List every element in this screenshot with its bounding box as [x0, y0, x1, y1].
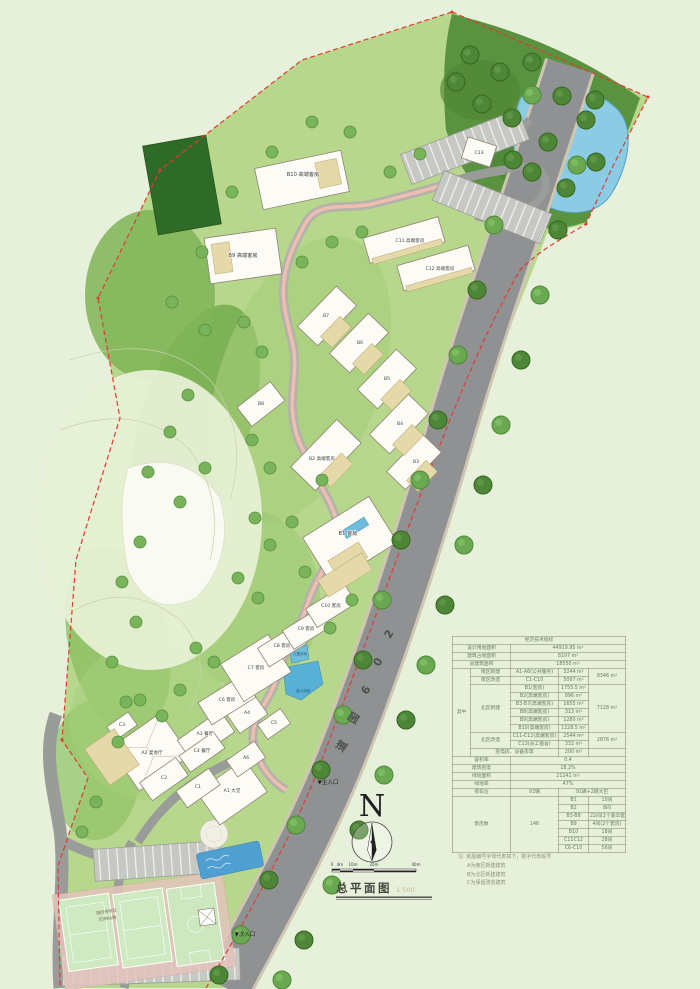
pavilion: [198, 908, 216, 926]
building-label-b10: B10 高端客房: [287, 170, 320, 178]
building-label-a3: A3 餐厅: [197, 730, 214, 737]
building-label-b1: B1 客房: [339, 529, 358, 537]
building-label-a2: A2 宴会厅: [141, 749, 163, 756]
north-label: N: [359, 789, 385, 824]
note-line: C为保留改造建筑: [458, 879, 551, 888]
scale-tick-20m: 20m: [370, 862, 379, 867]
adult-pool-label: 成人泳池: [296, 688, 310, 693]
spec-row: 变电房、设备房等200 m²: [453, 749, 626, 757]
spec-row: 客房数146B110间: [453, 797, 626, 805]
note-line: B为北区新建建筑: [458, 871, 551, 880]
kids-pool-label: 儿童泳池: [293, 651, 307, 656]
spec-row: 总建筑面积18550 m²: [453, 661, 626, 669]
spec-row: 绿地率47%: [453, 781, 626, 789]
spec-row: 停车位93辆91辆+2辆大巴: [453, 789, 626, 797]
plaza-circle: [200, 820, 228, 848]
note-line: 注: 房屋编号字母代表如下，数字代表栋号: [458, 853, 551, 862]
building-label-c9: C9 客房: [298, 625, 315, 632]
building-label-b3: B3: [413, 459, 419, 465]
building-label-a4: A4: [244, 710, 250, 716]
building-label-b7: B7: [323, 313, 329, 319]
main-entrance-label: ▼主入口: [318, 778, 339, 786]
building-label-c11: C11 高端客房: [396, 237, 425, 244]
building-label-c2: C2: [161, 775, 167, 781]
building-label-b4: B4: [397, 421, 403, 427]
page-title: 总平面图: [336, 881, 392, 895]
building-label-c13: C13: [474, 150, 483, 156]
building-label-c7: C7 客房: [248, 664, 265, 671]
building-label-c1: C1: [195, 784, 201, 790]
scale-tick-4m: 4m: [337, 862, 344, 867]
building-label-c12: C12 高端客房: [426, 265, 455, 272]
building-label-c5: C5: [271, 720, 277, 726]
spec-row: 北区改造C11-C12(高端客房)2544 m²2876 m²: [453, 733, 626, 741]
building-label-a1: A1 大堂: [224, 787, 241, 794]
building-label-c6: C6 客房: [219, 696, 236, 703]
spec-row: 北区新建B1(客房)1755.5 m²7128 m²: [453, 685, 626, 693]
title-scale: 1:500: [396, 886, 415, 894]
spec-row: 容积率0.4: [453, 757, 626, 765]
spec-table: 经济技术指标 设计用地面积44919.95 m² 建筑占地面积8197 m² 总…: [452, 636, 626, 853]
spec-row: 建筑密度18.2%: [453, 765, 626, 773]
building-label-c10: C10 客房: [321, 602, 341, 609]
building-label-b2: B2 高端客房: [309, 455, 335, 462]
spec-row: 建筑占地面积8197 m²: [453, 653, 626, 661]
spec-row: 设计用地面积44919.95 m²: [453, 645, 626, 653]
master-plan-canvas: A1 大堂 A2 宴会厅 A3 餐厅 A4 A6 C1 C2 C3 C4 餐厅 …: [0, 0, 700, 989]
building-label-b9: B9 高端客房: [228, 251, 257, 259]
scale-tick-40m: 40m: [412, 862, 421, 867]
scale-tick-0: 0: [331, 862, 334, 867]
legend-notes: 注: 房屋编号字母代表如下，数字代表栋号 A为南区新建建筑 B为北区新建建筑 C…: [458, 853, 551, 888]
building-label-c8: C8 客房: [274, 642, 291, 649]
secondary-entrance-label: ▼次入口: [235, 930, 256, 938]
scale-bar: 0 4m 10m 20m 40m: [331, 862, 421, 872]
spec-row: 其中南区新建A1-A6(公共服务)3244 m²8346 m²: [453, 669, 626, 677]
building-label-c4: C4 餐厅: [194, 747, 211, 754]
drawing-title: 总平面图 1:500: [336, 881, 432, 900]
building-label-c3: C3: [119, 722, 125, 728]
spec-header-row: 经济技术指标: [453, 637, 626, 645]
building-label-a6: A6: [243, 755, 249, 761]
building-label-b6: B6: [357, 340, 363, 346]
scale-tick-10m: 10m: [349, 862, 358, 867]
building-label-b8: B8: [258, 401, 264, 407]
spec-row: 绿地面积21241 m²: [453, 773, 626, 781]
building-label-b5: B5: [384, 376, 390, 382]
note-line: A为南区新建建筑: [458, 862, 551, 871]
